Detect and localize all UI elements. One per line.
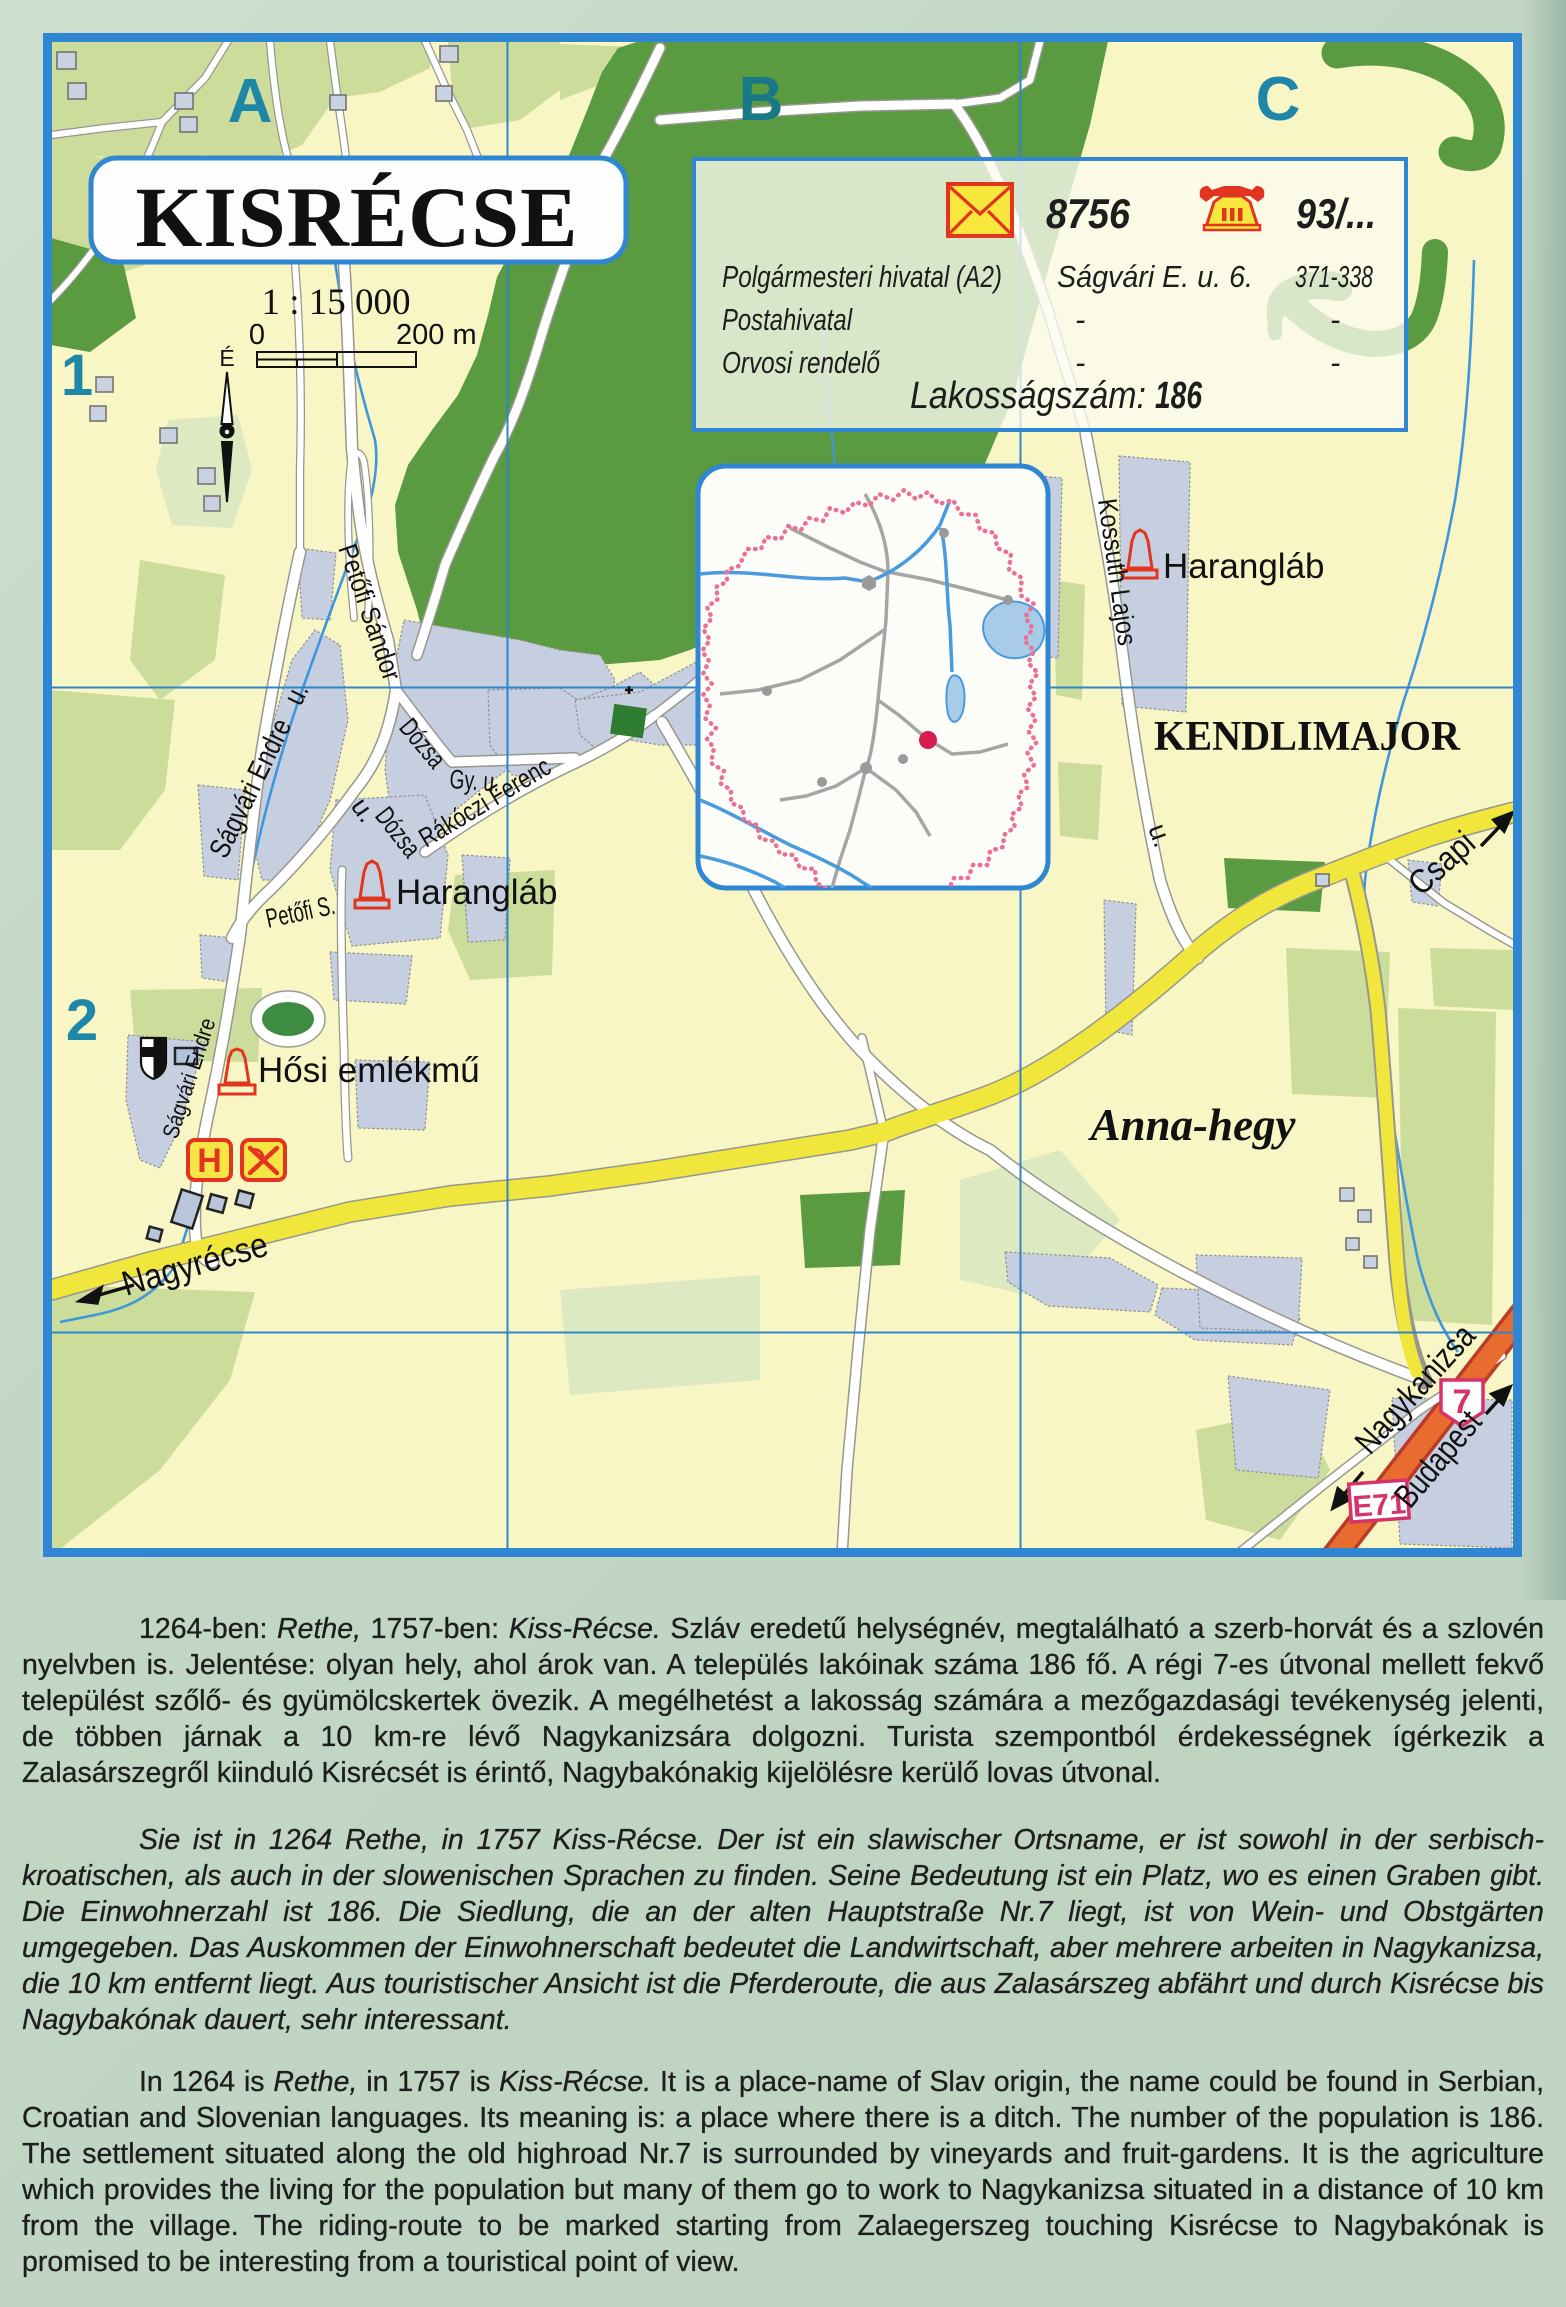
svg-text:200 m: 200 m [396,319,477,351]
svg-text:-: - [1075,302,1085,337]
svg-text:186: 186 [1155,375,1203,417]
svg-text:H: H [197,1142,222,1180]
svg-text:1 : 15 000: 1 : 15 000 [261,282,410,323]
svg-text:2: 2 [66,988,98,1053]
svg-text:Ságvári E. u. 6.: Ságvári E. u. 6. [1057,259,1253,294]
svg-text:A: A [228,67,273,136]
svg-text:Orvosi rendelő: Orvosi rendelő [722,345,881,380]
svg-text:Lakosságszám:: Lakosságszám: [910,375,1146,417]
svg-text:Postahivatal: Postahivatal [722,302,853,337]
svg-text:É: É [219,345,234,371]
svg-text:0: 0 [249,319,265,351]
svg-text:Anna-hegy: Anna-hegy [1087,1100,1296,1150]
svg-text:B: B [739,65,784,134]
svg-text:C: C [1256,65,1301,134]
svg-text:8756: 8756 [1046,190,1131,237]
svg-text:93/...: 93/... [1296,190,1376,237]
svg-text:1: 1 [61,343,93,408]
svg-text:Hősi emlékmű: Hősi emlékmű [258,1051,480,1090]
svg-text:KISRÉCSE: KISRÉCSE [136,169,579,265]
svg-text:Harangláb: Harangláb [396,873,558,912]
svg-text:Polgármesteri hivatal (A2): Polgármesteri hivatal (A2) [722,259,1002,294]
svg-text:KENDLIMAJOR: KENDLIMAJOR [1154,714,1461,760]
svg-text:Harangláb: Harangláb [1163,547,1325,586]
svg-text:-: - [1330,302,1340,337]
svg-text:-: - [1330,345,1340,380]
svg-text:371-338: 371-338 [1295,259,1374,294]
